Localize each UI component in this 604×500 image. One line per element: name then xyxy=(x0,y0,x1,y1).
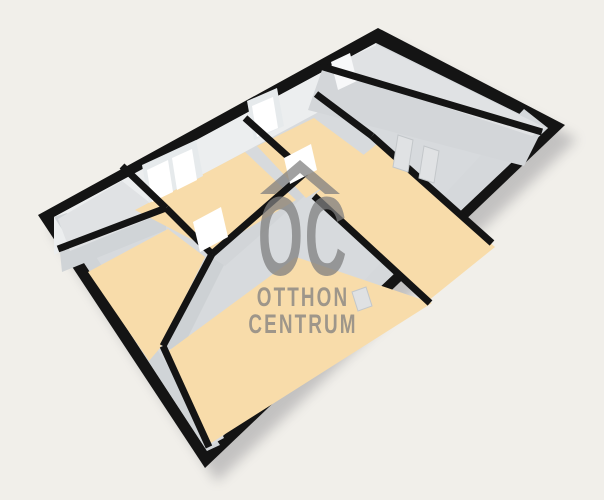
floorplan-stage: OC OTTHON CENTRUM xyxy=(0,0,604,500)
watermark-logo-text: OC xyxy=(258,181,348,293)
watermark-line1: OTTHON xyxy=(257,284,349,311)
watermark-line2: CENTRUM xyxy=(248,311,357,338)
